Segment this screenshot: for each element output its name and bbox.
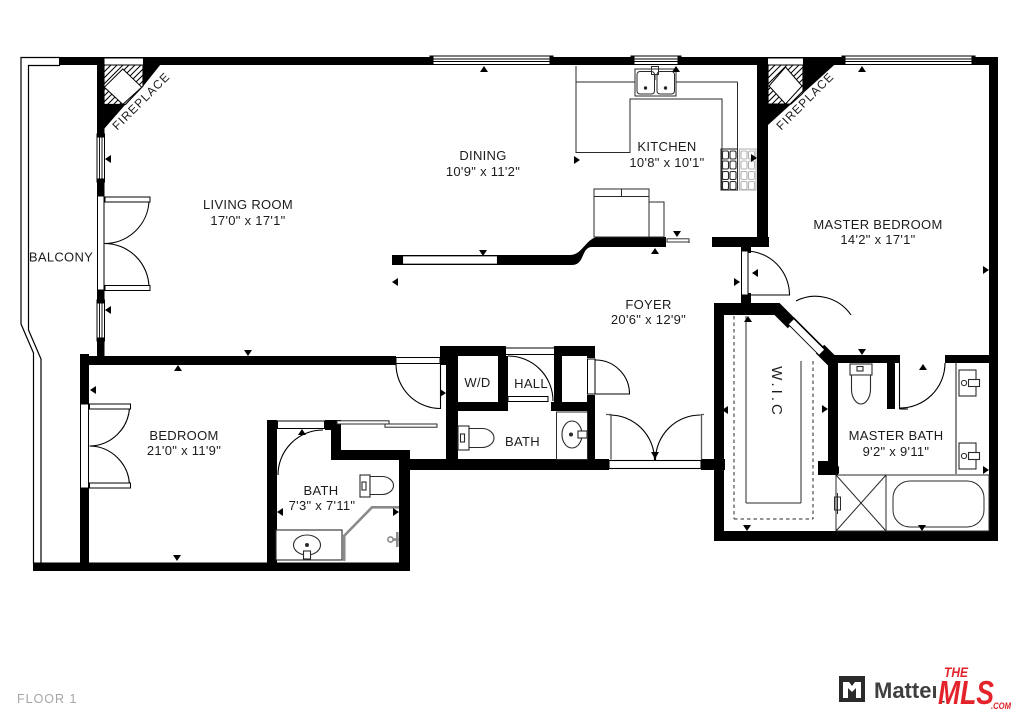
- svg-text:10'9" x 11'2": 10'9" x 11'2": [446, 164, 520, 179]
- svg-text:BATH: BATH: [304, 483, 339, 498]
- svg-text:MASTER BATH: MASTER BATH: [849, 428, 944, 443]
- svg-text:MLS: MLS: [938, 674, 994, 711]
- svg-text:21'0" x 11'9": 21'0" x 11'9": [147, 443, 221, 458]
- svg-text:FOYER: FOYER: [625, 297, 671, 312]
- svg-text:W.I.C: W.I.C: [768, 366, 785, 418]
- svg-text:LIVING ROOM: LIVING ROOM: [203, 197, 293, 212]
- svg-text:DINING: DINING: [459, 148, 506, 163]
- svg-text:MASTER BEDROOM: MASTER BEDROOM: [813, 217, 942, 232]
- svg-text:20'6" x 12'9": 20'6" x 12'9": [611, 312, 686, 327]
- svg-text:17'0" x 17'1": 17'0" x 17'1": [210, 213, 285, 228]
- svg-text:9'2" x 9'11": 9'2" x 9'11": [863, 444, 930, 459]
- svg-text:HALL: HALL: [514, 376, 548, 391]
- svg-text:BATH: BATH: [505, 434, 540, 449]
- svg-text:W/D: W/D: [464, 375, 490, 390]
- svg-text:10'8" x 10'1": 10'8" x 10'1": [629, 155, 704, 170]
- svg-text:BALCONY: BALCONY: [29, 250, 93, 265]
- svg-text:7'3" x 7'11": 7'3" x 7'11": [289, 498, 356, 513]
- svg-text:.COM: .COM: [991, 701, 1011, 711]
- svg-text:BEDROOM: BEDROOM: [149, 428, 218, 443]
- svg-text:KITCHEN: KITCHEN: [637, 139, 696, 154]
- svg-text:14'2" x 17'1": 14'2" x 17'1": [840, 232, 915, 247]
- svg-text:FLOOR 1: FLOOR 1: [17, 692, 78, 706]
